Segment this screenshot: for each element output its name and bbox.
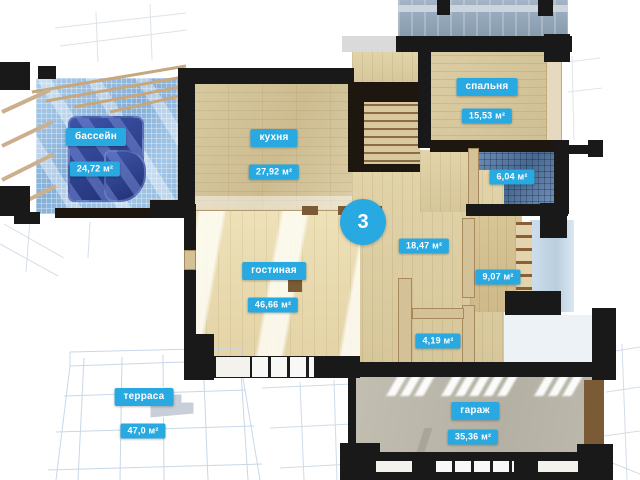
- room-label-garage[interactable]: гараж: [451, 402, 499, 420]
- door-gap: [184, 250, 196, 270]
- wall-living-left: [184, 204, 196, 344]
- garage-skylight: [441, 376, 519, 396]
- wall-garage-right-top: [592, 308, 616, 380]
- wall-corridor-left: [462, 218, 475, 298]
- wall-garage-top: [352, 362, 614, 377]
- porch-roof: [504, 315, 594, 362]
- wall-corridor-bottom: [505, 291, 561, 315]
- room-label-living[interactable]: гостиная: [242, 262, 306, 280]
- hall-floor: [420, 150, 470, 212]
- garage-window: [538, 461, 578, 472]
- kitchen-counter: [194, 196, 352, 211]
- room-label-pool[interactable]: бассейн: [66, 128, 126, 146]
- window: [216, 357, 250, 377]
- room-area-garage[interactable]: 35,36 м²: [448, 430, 498, 445]
- corner-post: [38, 66, 56, 79]
- bedroom-floor: [430, 48, 548, 144]
- window: [252, 357, 314, 377]
- wall-bedroom-left: [418, 48, 431, 148]
- wall-pool-right: [178, 68, 195, 218]
- wall-storage-left: [398, 278, 412, 370]
- room-area-bedroom[interactable]: 15,53 м²: [462, 109, 512, 124]
- stair-rail: [364, 164, 420, 172]
- room-label-kitchen[interactable]: кухня: [250, 129, 297, 147]
- wall-bedroom-bath: [430, 140, 558, 152]
- room-area-pool[interactable]: 24,72 м²: [70, 162, 120, 177]
- room-area-terrace[interactable]: 47,0 м²: [120, 424, 165, 439]
- sketch-top-left: [55, 4, 187, 62]
- room-area-kitchen[interactable]: 27,92 м²: [249, 165, 299, 180]
- corner-post: [544, 34, 570, 62]
- garage-window: [436, 461, 514, 472]
- corner-post: [14, 212, 40, 224]
- wall-bedroom-right: [546, 50, 562, 144]
- room-area-storage[interactable]: 4,19 м²: [415, 334, 460, 349]
- sketch-right-mid: [568, 56, 602, 140]
- furniture: [302, 206, 318, 215]
- room-area-corridor[interactable]: 9,07 м²: [475, 270, 520, 285]
- floor-number-badge[interactable]: 3: [340, 199, 386, 245]
- wall-top-light: [342, 36, 398, 52]
- room-area-hall[interactable]: 18,47 м²: [399, 239, 449, 254]
- furniture: [288, 279, 302, 292]
- balcony-post: [538, 0, 553, 16]
- corner-post: [0, 62, 30, 90]
- corner-post: [540, 203, 567, 238]
- wall-storage-top: [412, 308, 464, 319]
- balcony-post: [437, 0, 450, 15]
- wall-stairs-left: [348, 82, 364, 172]
- vent-block: [588, 140, 603, 157]
- room-label-bedroom[interactable]: спальня: [457, 78, 518, 96]
- floor-plan-canvas: бассейн 24,72 м² кухня 27,92 м² спальня …: [0, 0, 640, 480]
- room-label-terrace[interactable]: терраса: [115, 388, 174, 406]
- vent-beam: [556, 145, 592, 154]
- living-room-floor: [194, 210, 360, 362]
- room-area-bathroom[interactable]: 6,04 м²: [489, 170, 534, 185]
- stair-landing-dark: [364, 82, 420, 102]
- garage-window: [376, 461, 412, 472]
- wall-bath-left: [468, 148, 479, 210]
- room-area-living[interactable]: 46,66 м²: [248, 298, 298, 313]
- wall-garage-right-wood: [584, 380, 604, 444]
- sketch-pool-bottom: [0, 220, 90, 276]
- wall-kitchen-top: [180, 68, 354, 84]
- stair-landing-floor: [352, 52, 418, 84]
- sketch-mid-bottom: [262, 380, 352, 480]
